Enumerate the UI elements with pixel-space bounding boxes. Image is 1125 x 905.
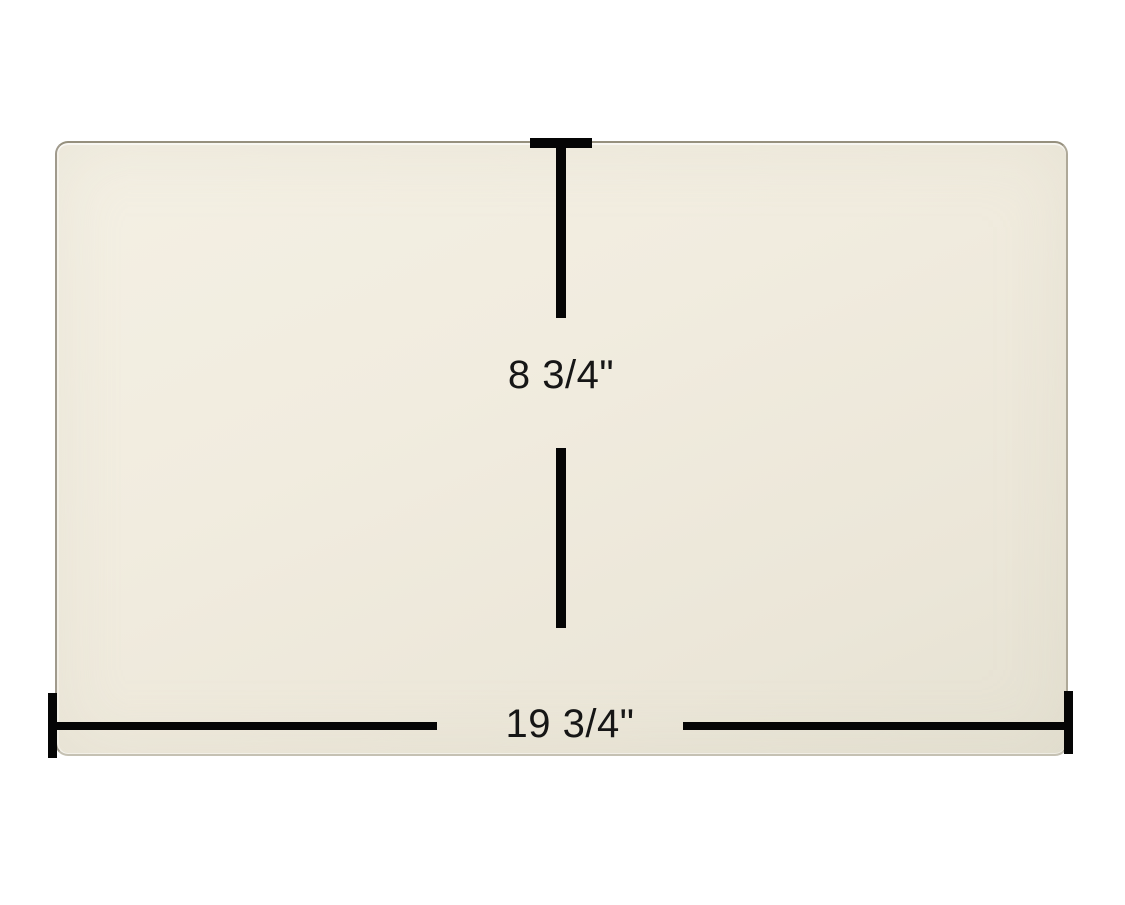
width-dimension-label: 19 3/4" <box>506 704 635 744</box>
height-dimension-label: 8 3/4" <box>508 355 614 395</box>
product-dimension-image: 8 3/4" 19 3/4" <box>0 0 1125 905</box>
height-dimension-line-upper <box>556 146 566 318</box>
width-dimension-line-right <box>683 722 1064 730</box>
height-dimension-line-lower <box>556 448 566 628</box>
width-dimension-line-left <box>55 722 437 730</box>
width-dimension-right-cap <box>1064 691 1073 754</box>
